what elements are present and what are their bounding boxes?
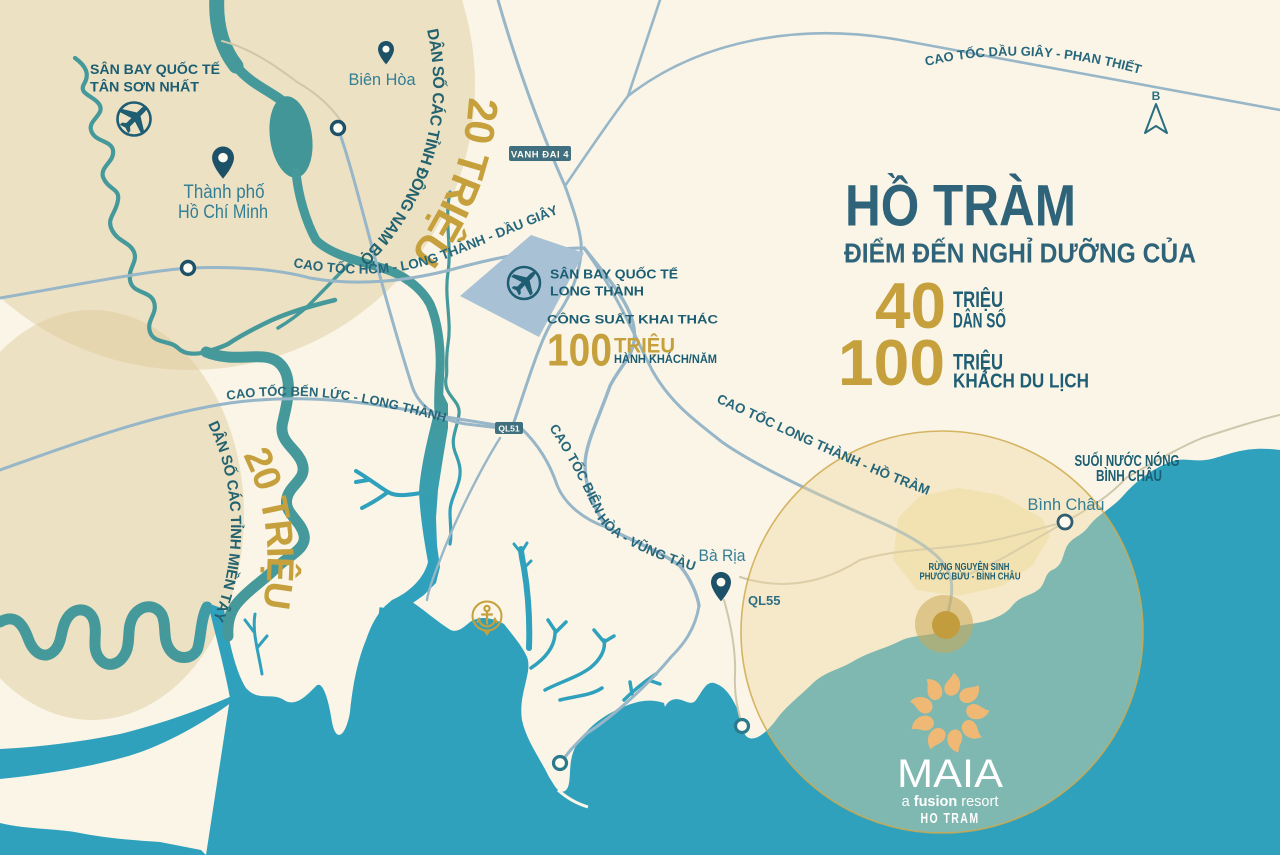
svg-text:MAIA: MAIA <box>897 752 1003 796</box>
svg-text:LONG THÀNH: LONG THÀNH <box>550 284 644 299</box>
svg-text:QL55: QL55 <box>748 593 781 608</box>
svg-text:ĐIỂM ĐẾN NGHỈ DƯỠNG CỦA: ĐIỂM ĐẾN NGHỈ DƯỠNG CỦA <box>844 237 1196 269</box>
svg-text:BÌNH CHÂU: BÌNH CHÂU <box>1096 466 1162 485</box>
svg-text:SÂN BAY QUỐC TẾ: SÂN BAY QUỐC TẾ <box>550 267 678 282</box>
svg-text:SÂN BAY QUỐC TẾ: SÂN BAY QUỐC TẾ <box>90 60 220 77</box>
svg-text:a fusion resort: a fusion resort <box>902 794 999 810</box>
svg-text:Bình Châu: Bình Châu <box>1028 495 1105 514</box>
svg-text:Hồ Chí Minh: Hồ Chí Minh <box>178 202 268 223</box>
svg-text:VANH ĐAI 4: VANH ĐAI 4 <box>511 150 569 161</box>
svg-text:Biên Hòa: Biên Hòa <box>349 70 417 89</box>
svg-text:TÂN SƠN NHẤT: TÂN SƠN NHẤT <box>90 77 199 94</box>
svg-text:B: B <box>1152 89 1161 103</box>
svg-text:PHƯỚC BỬU - BÌNH CHÂU: PHƯỚC BỬU - BÌNH CHÂU <box>920 570 1021 583</box>
svg-text:100: 100 <box>547 325 612 376</box>
svg-text:DÂN SỐ: DÂN SỐ <box>953 309 1006 333</box>
svg-text:KHÁCH DU LỊCH: KHÁCH DU LỊCH <box>953 369 1089 392</box>
svg-text:Thành phố: Thành phố <box>184 182 265 203</box>
svg-text:100: 100 <box>838 327 945 399</box>
svg-text:Bà Rịa: Bà Rịa <box>699 546 746 565</box>
svg-text:HO TRAM: HO TRAM <box>921 811 980 827</box>
svg-text:SUỐI NƯỚC NÓNG: SUỐI NƯỚC NÓNG <box>1075 450 1180 470</box>
svg-text:HÀNH KHÁCH/NĂM: HÀNH KHÁCH/NĂM <box>614 353 717 366</box>
svg-text:QL51: QL51 <box>498 424 520 434</box>
svg-text:TRIỆU: TRIỆU <box>953 287 1003 312</box>
svg-text:HỒ TRÀM: HỒ TRÀM <box>845 174 1076 239</box>
